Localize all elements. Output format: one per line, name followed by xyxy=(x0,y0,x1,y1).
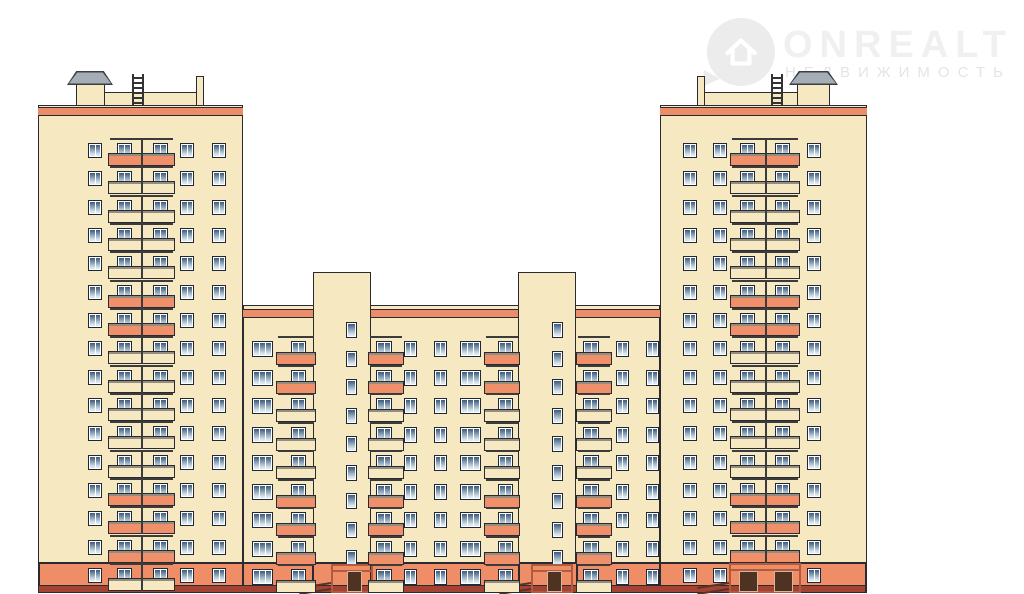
window xyxy=(683,228,697,243)
window-pane xyxy=(96,372,101,383)
window-pane xyxy=(254,343,259,355)
window-pane xyxy=(685,287,690,298)
window-pane xyxy=(182,372,187,383)
window-pane xyxy=(96,230,101,241)
window-pane xyxy=(468,457,473,469)
window xyxy=(404,341,417,357)
window xyxy=(683,398,697,413)
stair-window xyxy=(346,522,357,538)
balcony-divider xyxy=(141,563,143,591)
window xyxy=(88,398,102,413)
window-pane xyxy=(474,571,479,583)
window-pane xyxy=(474,514,479,526)
balcony-divider xyxy=(765,166,767,194)
window-pane xyxy=(220,513,225,524)
window xyxy=(404,370,417,386)
balcony-railing xyxy=(370,422,402,424)
window-pane xyxy=(260,514,265,526)
window xyxy=(807,171,821,186)
window-pane xyxy=(188,315,193,326)
balcony-slab xyxy=(484,466,520,479)
balcony-divider xyxy=(141,336,143,364)
window-pane xyxy=(721,258,726,269)
stair-window xyxy=(552,322,563,338)
balcony-railing xyxy=(278,507,314,509)
window xyxy=(180,398,194,413)
window xyxy=(252,484,273,500)
window-pane xyxy=(554,495,561,507)
roof-penthouse xyxy=(697,76,705,107)
window-pane xyxy=(406,372,410,384)
window-pane xyxy=(441,486,445,498)
window xyxy=(807,143,821,158)
window xyxy=(646,370,659,386)
window-pane xyxy=(188,513,193,524)
window xyxy=(713,483,727,498)
window xyxy=(88,483,102,498)
parapet-stripe xyxy=(243,309,660,318)
window-pane xyxy=(691,287,696,298)
window xyxy=(807,370,821,385)
window xyxy=(807,540,821,555)
window-pane xyxy=(715,287,720,298)
window-pane xyxy=(815,457,820,468)
window xyxy=(807,455,821,470)
balcony-railing xyxy=(486,336,518,338)
balcony-divider xyxy=(141,195,143,223)
window xyxy=(646,427,659,443)
window xyxy=(683,171,697,186)
window xyxy=(683,455,697,470)
window-pane xyxy=(90,202,95,213)
window xyxy=(434,541,447,557)
window xyxy=(460,512,481,528)
window xyxy=(88,341,102,356)
window xyxy=(212,540,226,555)
window-pane xyxy=(715,485,720,496)
stair-window xyxy=(346,408,357,424)
window xyxy=(434,398,447,414)
window-pane xyxy=(96,400,101,411)
balcony-slab xyxy=(484,580,520,593)
window-pane xyxy=(96,315,101,326)
window-pane xyxy=(96,173,101,184)
window-pane xyxy=(715,513,720,524)
window-pane xyxy=(436,343,440,355)
window xyxy=(212,143,226,158)
entrance-door xyxy=(739,571,758,592)
window xyxy=(713,228,727,243)
window-pane xyxy=(815,542,820,553)
window xyxy=(683,143,697,158)
window-pane xyxy=(721,570,726,581)
window xyxy=(88,285,102,300)
window-pane xyxy=(815,372,820,383)
balcony-divider xyxy=(765,478,767,506)
window-pane xyxy=(691,173,696,184)
window-pane xyxy=(462,543,467,555)
window-pane xyxy=(96,258,101,269)
window-pane xyxy=(815,570,820,581)
window-pane xyxy=(182,343,187,354)
window-pane xyxy=(685,230,690,241)
window-pane xyxy=(653,571,657,583)
window xyxy=(683,200,697,215)
window-pane xyxy=(815,343,820,354)
window-pane xyxy=(441,429,445,441)
window-pane xyxy=(653,400,657,412)
balcony-railing xyxy=(370,450,402,452)
window-pane xyxy=(90,485,95,496)
stair-tower xyxy=(518,272,576,593)
window xyxy=(252,427,273,443)
window-pane xyxy=(436,571,440,583)
window-pane xyxy=(623,514,627,526)
balcony-slab xyxy=(484,523,520,536)
window-pane xyxy=(90,428,95,439)
window-pane xyxy=(220,400,225,411)
window xyxy=(616,484,629,500)
window-pane xyxy=(653,514,657,526)
window xyxy=(460,569,481,585)
window-pane xyxy=(182,457,187,468)
window-pane xyxy=(721,173,726,184)
balcony-divider xyxy=(765,535,767,563)
balcony-railing xyxy=(370,393,402,395)
window-pane xyxy=(815,428,820,439)
window-pane xyxy=(721,513,726,524)
window-pane xyxy=(411,486,415,498)
window-pane xyxy=(254,400,259,412)
window-pane xyxy=(406,457,410,469)
window-pane xyxy=(188,202,193,213)
window-pane xyxy=(815,145,820,156)
window xyxy=(434,569,447,585)
window xyxy=(807,511,821,526)
window-pane xyxy=(715,230,720,241)
window-pane xyxy=(815,513,820,524)
window-pane xyxy=(254,372,259,384)
balcony-railing xyxy=(278,393,314,395)
window xyxy=(212,511,226,526)
window-pane xyxy=(691,542,696,553)
window-pane xyxy=(182,202,187,213)
window-pane xyxy=(648,543,652,555)
window-pane xyxy=(96,202,101,213)
window-pane xyxy=(809,485,814,496)
window xyxy=(252,541,273,557)
window-pane xyxy=(691,202,696,213)
window-pane xyxy=(685,428,690,439)
window xyxy=(88,171,102,186)
balcony-slab xyxy=(576,580,612,593)
window xyxy=(434,427,447,443)
window-pane xyxy=(468,400,473,412)
balcony-divider xyxy=(141,166,143,194)
window-pane xyxy=(90,315,95,326)
window-pane xyxy=(809,457,814,468)
window-pane xyxy=(188,457,193,468)
window-pane xyxy=(468,514,473,526)
balcony-railing xyxy=(370,564,402,566)
window-pane xyxy=(809,145,814,156)
window-pane xyxy=(96,428,101,439)
window-pane xyxy=(436,514,440,526)
balcony-divider xyxy=(141,535,143,563)
window-pane xyxy=(260,429,265,441)
window-pane xyxy=(348,353,355,365)
balcony-divider xyxy=(765,280,767,308)
window-pane xyxy=(648,372,652,384)
window xyxy=(88,313,102,328)
window-pane xyxy=(691,258,696,269)
balcony-slab xyxy=(276,466,316,479)
window-pane xyxy=(260,486,265,498)
window-pane xyxy=(715,400,720,411)
window-pane xyxy=(90,258,95,269)
window xyxy=(616,370,629,386)
window-pane xyxy=(214,400,219,411)
window-pane xyxy=(266,400,271,412)
window xyxy=(807,313,821,328)
balcony-divider xyxy=(765,251,767,279)
balcony-divider xyxy=(765,450,767,478)
window-pane xyxy=(188,230,193,241)
window-pane xyxy=(348,524,355,536)
window-pane xyxy=(96,343,101,354)
window-pane xyxy=(220,202,225,213)
window-pane xyxy=(441,543,445,555)
window-pane xyxy=(436,400,440,412)
window xyxy=(180,426,194,441)
window-pane xyxy=(441,571,445,583)
stair-window xyxy=(346,322,357,338)
window-pane xyxy=(685,513,690,524)
window-pane xyxy=(266,543,271,555)
window xyxy=(683,285,697,300)
window-pane xyxy=(220,457,225,468)
window-pane xyxy=(348,467,355,479)
window-pane xyxy=(188,570,193,581)
window xyxy=(88,256,102,271)
window-pane xyxy=(618,543,622,555)
window-pane xyxy=(715,428,720,439)
entrance-door xyxy=(347,571,362,592)
window xyxy=(180,313,194,328)
window-pane xyxy=(182,428,187,439)
window xyxy=(713,455,727,470)
window-pane xyxy=(254,486,259,498)
window-pane xyxy=(715,570,720,581)
window xyxy=(713,426,727,441)
window xyxy=(88,455,102,470)
window-pane xyxy=(653,429,657,441)
window xyxy=(616,455,629,471)
balcony-divider xyxy=(765,138,767,166)
balcony-divider xyxy=(765,393,767,421)
window-pane xyxy=(96,485,101,496)
window-pane xyxy=(474,457,479,469)
window-pane xyxy=(691,400,696,411)
window xyxy=(713,540,727,555)
window-pane xyxy=(411,543,415,555)
window-pane xyxy=(815,202,820,213)
window xyxy=(713,568,727,583)
balcony-railing xyxy=(370,336,402,338)
window-pane xyxy=(474,372,479,384)
window-pane xyxy=(685,258,690,269)
window-pane xyxy=(648,457,652,469)
window xyxy=(683,568,697,583)
stair-window xyxy=(552,522,563,538)
window-pane xyxy=(691,230,696,241)
window-pane xyxy=(685,202,690,213)
balcony-slab xyxy=(276,352,316,365)
window xyxy=(616,427,629,443)
window-pane xyxy=(653,486,657,498)
window-pane xyxy=(809,513,814,524)
window xyxy=(460,398,481,414)
window-pane xyxy=(90,570,95,581)
window-pane xyxy=(214,513,219,524)
window xyxy=(713,313,727,328)
window-pane xyxy=(618,429,622,441)
window-pane xyxy=(406,514,410,526)
window-pane xyxy=(182,570,187,581)
roof-penthouse xyxy=(196,76,204,107)
balcony-railing xyxy=(278,479,314,481)
window xyxy=(212,370,226,385)
window xyxy=(88,568,102,583)
window xyxy=(180,341,194,356)
window xyxy=(212,200,226,215)
window-pane xyxy=(220,287,225,298)
window xyxy=(404,398,417,414)
balcony-railing xyxy=(578,365,610,367)
window-pane xyxy=(214,428,219,439)
window xyxy=(616,341,629,357)
window-pane xyxy=(254,543,259,555)
window xyxy=(683,511,697,526)
window-pane xyxy=(809,258,814,269)
window-pane xyxy=(623,571,627,583)
window xyxy=(460,341,481,357)
balcony-divider xyxy=(141,450,143,478)
window-pane xyxy=(462,486,467,498)
window-pane xyxy=(90,230,95,241)
stair-tower xyxy=(313,272,371,593)
roof-ladder-icon xyxy=(771,74,783,105)
stair-window xyxy=(346,351,357,367)
window xyxy=(460,370,481,386)
window-pane xyxy=(815,173,820,184)
window-pane xyxy=(648,429,652,441)
window-pane xyxy=(815,230,820,241)
window xyxy=(252,455,273,471)
window xyxy=(212,568,226,583)
window xyxy=(683,540,697,555)
window xyxy=(460,427,481,443)
window xyxy=(434,484,447,500)
window-pane xyxy=(406,543,410,555)
window xyxy=(404,455,417,471)
window xyxy=(212,341,226,356)
stair-window xyxy=(346,465,357,481)
window-pane xyxy=(90,542,95,553)
balcony-slab xyxy=(484,409,520,422)
window-pane xyxy=(721,230,726,241)
window-pane xyxy=(406,343,410,355)
window xyxy=(180,143,194,158)
window xyxy=(713,143,727,158)
balcony-railing xyxy=(370,365,402,367)
window xyxy=(180,228,194,243)
window-pane xyxy=(220,343,225,354)
window-pane xyxy=(260,571,265,583)
window-pane xyxy=(182,173,187,184)
window-pane xyxy=(715,372,720,383)
balcony-railing xyxy=(578,536,610,538)
balcony-railing xyxy=(486,393,518,395)
window xyxy=(713,341,727,356)
balcony-slab xyxy=(276,409,316,422)
window-pane xyxy=(188,258,193,269)
window-pane xyxy=(220,428,225,439)
window-pane xyxy=(618,514,622,526)
window-pane xyxy=(436,486,440,498)
window-pane xyxy=(260,543,265,555)
balcony-divider xyxy=(141,223,143,251)
window-pane xyxy=(182,258,187,269)
window-pane xyxy=(721,315,726,326)
window-pane xyxy=(685,542,690,553)
balcony-railing xyxy=(486,564,518,566)
window xyxy=(683,313,697,328)
window-pane xyxy=(254,514,259,526)
balcony-divider xyxy=(141,280,143,308)
window xyxy=(683,256,697,271)
window-pane xyxy=(462,457,467,469)
window-pane xyxy=(220,542,225,553)
window-pane xyxy=(188,372,193,383)
balcony-divider xyxy=(141,365,143,393)
window-pane xyxy=(90,457,95,468)
window-pane xyxy=(182,145,187,156)
window-pane xyxy=(214,173,219,184)
window-pane xyxy=(721,400,726,411)
window-pane xyxy=(411,429,415,441)
window-pane xyxy=(691,570,696,581)
window xyxy=(180,200,194,215)
balcony-railing xyxy=(578,507,610,509)
window-pane xyxy=(554,467,561,479)
window-pane xyxy=(691,513,696,524)
balcony-railing xyxy=(486,365,518,367)
window xyxy=(460,455,481,471)
window-pane xyxy=(188,542,193,553)
balcony-slab xyxy=(484,352,520,365)
window-pane xyxy=(554,438,561,450)
window-pane xyxy=(90,513,95,524)
window-pane xyxy=(96,542,101,553)
balcony-slab xyxy=(576,352,612,365)
window-pane xyxy=(618,400,622,412)
balcony-divider xyxy=(765,506,767,534)
balcony-railing xyxy=(278,450,314,452)
window xyxy=(88,426,102,441)
window-pane xyxy=(468,571,473,583)
window xyxy=(683,341,697,356)
